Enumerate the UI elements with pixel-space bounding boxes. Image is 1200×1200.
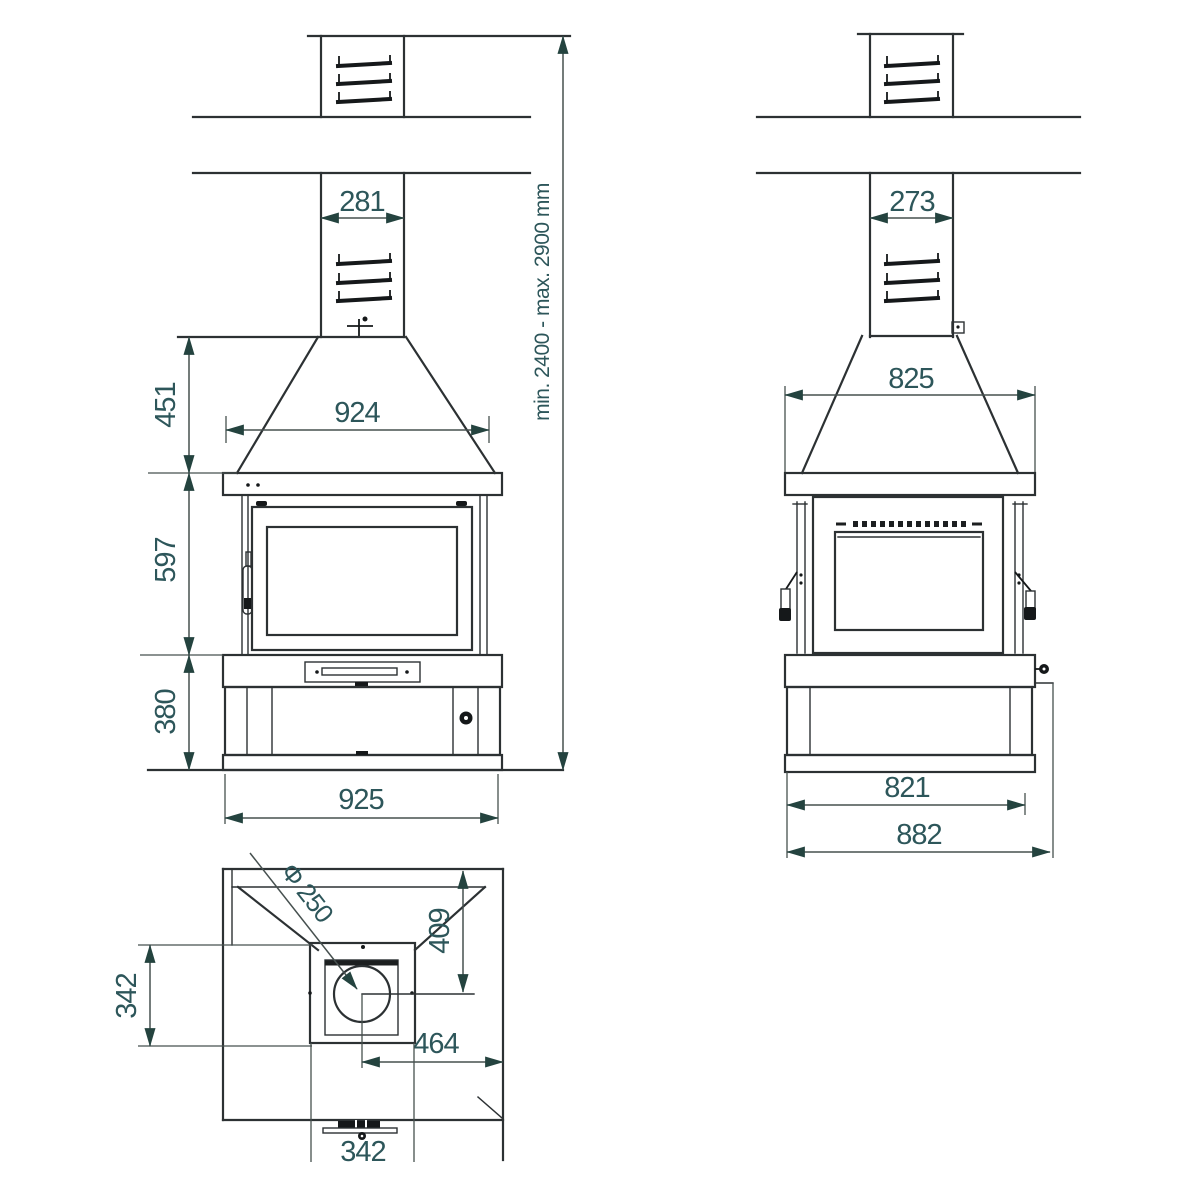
hinge-icon bbox=[256, 501, 267, 506]
dim-opening-depth: 342 bbox=[111, 945, 312, 1046]
side-view: 273 825 bbox=[757, 34, 1080, 858]
shelf-screw bbox=[256, 483, 260, 487]
dim-overall-width: 925 bbox=[225, 774, 498, 824]
dim-label-925: 925 bbox=[338, 784, 383, 816]
dim-flue-center-to-side: 464 bbox=[362, 994, 503, 1068]
louver-icon bbox=[338, 73, 390, 84]
dim-chimney-width: 281 bbox=[321, 186, 404, 218]
firebox-glass bbox=[267, 527, 457, 635]
louver-icon bbox=[338, 290, 390, 301]
hood-shelf bbox=[785, 473, 1035, 495]
base-body bbox=[225, 687, 500, 755]
chimney-louvers-upper bbox=[338, 55, 390, 102]
base-bottom-band bbox=[223, 755, 502, 770]
shelf-screw bbox=[246, 483, 250, 487]
dim-label-821: 821 bbox=[884, 772, 929, 804]
firebox-door-frame bbox=[252, 507, 472, 650]
dim-label-install-height: min. 2400 - max. 2900 mm bbox=[531, 183, 554, 421]
louver-icon bbox=[886, 290, 938, 301]
dim-chain-left: 451 597 380 bbox=[140, 337, 237, 770]
dim-label-281: 281 bbox=[339, 186, 384, 218]
dim-label-342-side: 342 bbox=[111, 973, 143, 1018]
hood-slope-right bbox=[957, 336, 1018, 473]
rear-knob-icon bbox=[1035, 664, 1049, 674]
louver-icon bbox=[338, 253, 390, 264]
louver-icon bbox=[338, 272, 390, 283]
hinge-icon bbox=[456, 501, 467, 506]
side-handle-right bbox=[1015, 572, 1036, 620]
base-body bbox=[787, 687, 1032, 755]
louver-icon bbox=[886, 253, 938, 264]
side-handle-left bbox=[779, 572, 803, 621]
louver-icon bbox=[886, 55, 938, 66]
chimney-louvers-upper bbox=[886, 55, 938, 102]
base-center-tab bbox=[356, 751, 368, 755]
louver-icon bbox=[338, 91, 390, 102]
dim-flue-diameter: Φ 250 bbox=[250, 853, 357, 989]
hearth-band bbox=[785, 655, 1035, 687]
dim-hood-depth: 825 bbox=[785, 363, 1035, 473]
dim-label-380: 380 bbox=[150, 689, 182, 734]
hood-shelf bbox=[223, 473, 502, 495]
dim-chimney-depth: 273 bbox=[870, 186, 953, 218]
dim-label-451: 451 bbox=[150, 382, 182, 427]
side-window bbox=[835, 532, 983, 630]
dim-install-height: min. 2400 - max. 2900 mm bbox=[531, 36, 563, 770]
air-control-knob-icon bbox=[460, 712, 473, 725]
dim-label-924: 924 bbox=[334, 397, 380, 429]
corner-mark bbox=[478, 1097, 502, 1118]
louver-icon bbox=[886, 91, 938, 102]
dim-label-882: 882 bbox=[896, 819, 941, 851]
technical-drawing-canvas: 281 924 bbox=[0, 0, 1200, 1200]
dim-overall-depth: 882 bbox=[787, 819, 1050, 852]
ash-drawer bbox=[305, 662, 420, 687]
dim-label-342-bottom: 342 bbox=[340, 1136, 385, 1168]
top-view: Φ 250 409 342 464 bbox=[111, 853, 503, 1168]
damper-handle-icon bbox=[347, 317, 373, 337]
hood-slope-right bbox=[406, 337, 495, 473]
dim-label-597: 597 bbox=[150, 537, 182, 582]
base-bottom-band bbox=[785, 755, 1035, 772]
plan-dot bbox=[361, 945, 365, 949]
hood-slope-left bbox=[802, 336, 862, 473]
chimney-louvers-lower bbox=[886, 253, 938, 301]
hood-slope-left bbox=[237, 337, 318, 473]
dim-label-409: 409 bbox=[424, 908, 456, 953]
front-view: 281 924 bbox=[140, 36, 570, 824]
dim-label-flue-diameter: Φ 250 bbox=[275, 857, 340, 928]
louver-icon bbox=[338, 55, 390, 66]
dim-label-825: 825 bbox=[888, 363, 933, 395]
dim-label-273: 273 bbox=[889, 186, 934, 218]
louver-icon bbox=[886, 73, 938, 84]
dim-label-464: 464 bbox=[413, 1028, 459, 1060]
fireplace-drawing-svg: 281 924 bbox=[0, 0, 1200, 1200]
plan-dot bbox=[308, 991, 312, 995]
dim-flue-center-from-back: 409 bbox=[362, 871, 474, 994]
louver-icon bbox=[886, 272, 938, 283]
chimney-louvers-lower bbox=[338, 253, 390, 301]
